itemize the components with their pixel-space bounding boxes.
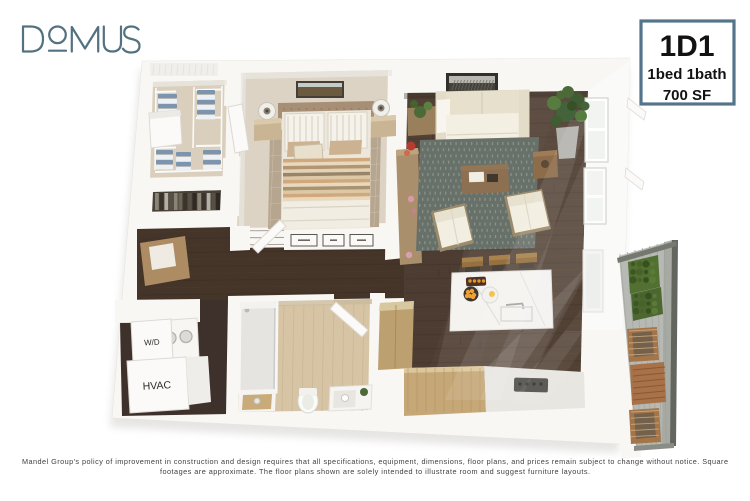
svg-text:700 SF: 700 SF	[663, 87, 711, 104]
svg-text:HVAC: HVAC	[142, 379, 171, 392]
svg-text:Mandel Group's policy of impro: Mandel Group's policy of improvement in …	[22, 457, 728, 466]
svg-text:W/D: W/D	[144, 338, 160, 348]
svg-text:1D1: 1D1	[659, 30, 714, 63]
svg-text:footages are approximate. The: footages are approximate. The floor plan…	[160, 467, 590, 476]
svg-text:1bed 1bath: 1bed 1bath	[647, 66, 726, 83]
